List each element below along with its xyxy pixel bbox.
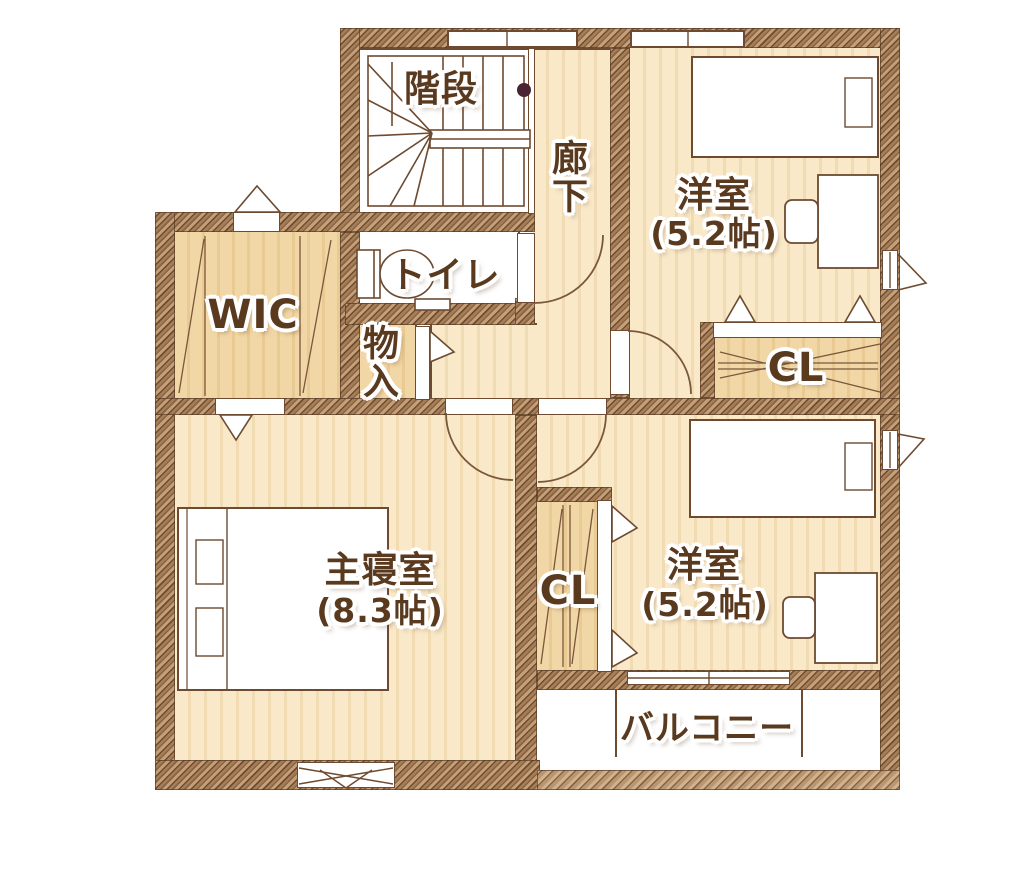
label-closet-north: CL [768, 345, 825, 391]
label-balcony: バルコニー [620, 701, 794, 750]
hallway-floor [533, 48, 612, 400]
door-opening-bedroom-south [538, 398, 607, 415]
right-window-mark-south [898, 434, 924, 468]
wall-balcony-outer [537, 770, 900, 790]
right-window-mark-north [898, 254, 926, 290]
door-leaf-closet-north [713, 322, 882, 338]
window-right-south [882, 430, 898, 470]
wall-toilet-bottom [345, 303, 535, 325]
wall-top [340, 28, 900, 48]
label-bedroom-north-area: (5.2帖) [650, 207, 778, 255]
label-hallway: 廊下 [540, 139, 592, 215]
window-balcony-sliding [627, 671, 790, 685]
label-stairs: 階段 [404, 60, 478, 112]
wall-upper-band [155, 212, 535, 232]
window-right-north [882, 250, 898, 290]
door-opening-bedroom-north [610, 330, 630, 395]
label-master-bedroom-area: (8.3帖) [316, 584, 444, 632]
label-closet-south: CL [540, 568, 597, 614]
label-wic: WIC [207, 292, 298, 338]
door-opening-master [445, 398, 513, 415]
window-bedroom-north [630, 30, 745, 48]
door-leaf-toilet [517, 233, 535, 303]
label-storage: 物入 [351, 324, 403, 400]
wic-window-mark [235, 186, 280, 212]
wall-master-right [515, 415, 537, 790]
floor-plan: 階段 廊下 洋室 (5.2帖) CL トイレ WIC 物入 主寝室 (8.3帖)… [0, 0, 1024, 887]
door-leaf-closet-south [597, 500, 612, 672]
hallway-floor-lower [430, 323, 537, 400]
window-wic [233, 212, 280, 232]
stairs-railing [528, 48, 535, 214]
label-bedroom-south-area: (5.2帖) [641, 578, 769, 626]
label-toilet: トイレ [389, 246, 500, 298]
window-master-south [297, 762, 395, 788]
wall-left [155, 212, 175, 790]
door-leaf-storage [415, 326, 430, 400]
door-opening-wic [215, 398, 285, 415]
window-stair-hall [447, 30, 578, 48]
wall-stairs-left [340, 28, 360, 232]
